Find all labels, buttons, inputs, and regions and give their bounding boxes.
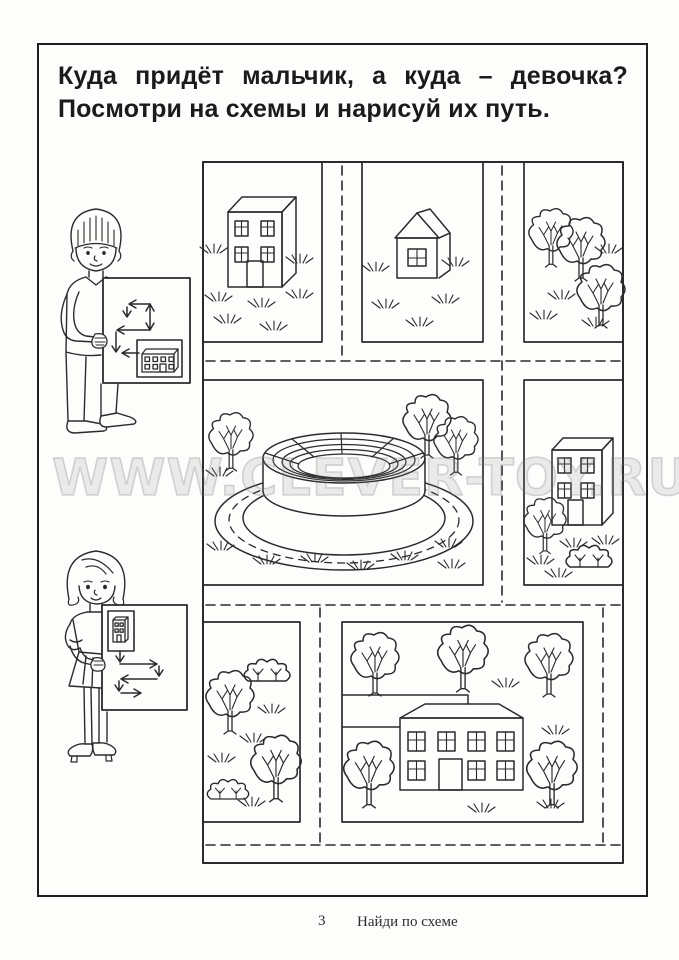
tree-icon: [251, 735, 301, 802]
large-house-icon: [400, 704, 523, 790]
page-footer: 3 Найди по схеме: [0, 913, 679, 937]
girl-head: [67, 551, 125, 605]
grass-tuft: [208, 753, 235, 762]
grass-tuft: [248, 298, 275, 307]
city-map: [200, 162, 625, 863]
grass-tuft: [442, 257, 469, 266]
boy-scheme-card: [103, 278, 190, 383]
tree-icon: [438, 625, 488, 692]
grass-tuft: [207, 541, 234, 550]
line-art: [0, 0, 679, 960]
grass-tuft: [548, 290, 575, 299]
grass-tuft: [260, 321, 287, 330]
grass-tuft: [286, 254, 313, 263]
grass-tuft: [258, 704, 285, 713]
grass-tuft: [286, 289, 313, 298]
apartment-building-icon: [552, 438, 613, 525]
grass-tuft: [582, 317, 609, 326]
grass-tuft: [438, 559, 465, 568]
grass-tuft: [527, 555, 554, 564]
apartment-building-icon: [228, 197, 296, 287]
grass-tuft: [537, 799, 564, 808]
grass-tuft: [468, 803, 495, 812]
grass-tuft: [592, 535, 619, 544]
workbook-page: Куда придёт мальчик, а куда – девочка? П…: [0, 0, 679, 960]
boy-hand: [92, 334, 107, 348]
panel-building-with-tree: [524, 380, 623, 585]
grass-tuft: [595, 244, 622, 253]
grass-tuft: [542, 725, 569, 734]
panel-trees-and-bushes: [203, 622, 301, 822]
stadium-icon: [215, 433, 473, 570]
panel-stadium: [203, 380, 483, 585]
grass-tuft: [432, 294, 459, 303]
map-road-centerlines: [206, 166, 620, 845]
fence-lines: [342, 695, 468, 727]
grass-tuft: [435, 538, 462, 547]
tree-icon: [351, 633, 399, 696]
grass-tuft: [200, 244, 227, 253]
tree-icon: [434, 417, 478, 475]
grass-tuft: [492, 678, 519, 687]
grass-tuft: [530, 310, 557, 319]
bush-icon: [244, 659, 290, 681]
tree-icon: [527, 741, 577, 808]
grass-tuft: [372, 299, 399, 308]
panel-large-house: [342, 622, 583, 822]
tree-icon: [525, 634, 573, 697]
boy-head: [71, 209, 121, 271]
girl-hand: [91, 658, 105, 671]
page-number: 3: [318, 913, 326, 930]
panel-small-house: [362, 162, 483, 342]
bush-icon: [207, 780, 248, 799]
tree-icon: [209, 413, 253, 471]
grass-tuft: [362, 262, 389, 271]
girl-scheme-card: [102, 605, 187, 710]
tree-icon: [529, 209, 573, 267]
map-outer-border: [203, 162, 623, 863]
tree-icon: [577, 265, 625, 328]
grass-tuft: [545, 568, 572, 577]
tree-icon: [344, 741, 394, 808]
grass-tuft: [406, 317, 433, 326]
panel-apartment-building: [200, 162, 322, 342]
footer-caption: Найди по схеме: [357, 914, 458, 931]
bush-icon: [566, 545, 612, 567]
small-house-icon: [395, 209, 450, 278]
panel-trees: [524, 162, 625, 342]
grass-tuft: [240, 733, 267, 742]
grass-tuft: [205, 292, 232, 301]
grass-tuft: [214, 314, 241, 323]
